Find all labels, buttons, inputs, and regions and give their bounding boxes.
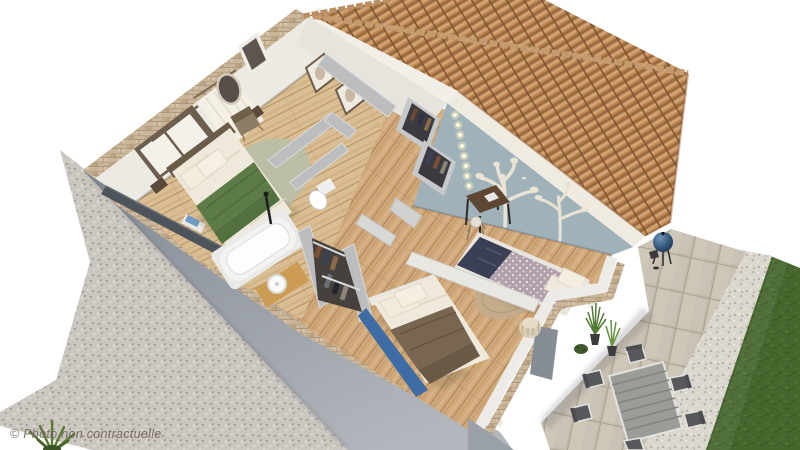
floorplan-render: © Photo non contractuelle: [0, 0, 800, 450]
shrub: [574, 344, 588, 354]
faucet-head: [264, 192, 269, 197]
outdoor-chair-6: [624, 438, 644, 450]
watermark: © Photo non contractuelle: [10, 427, 162, 441]
